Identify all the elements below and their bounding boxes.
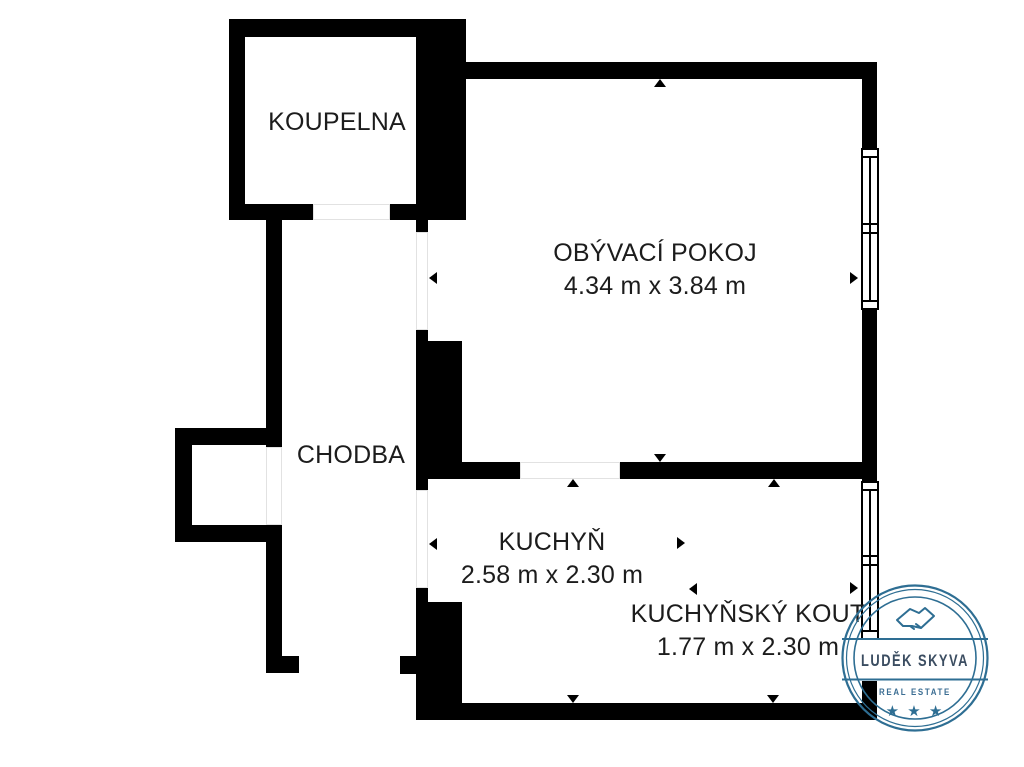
watermark-logo-svg: LUDĚK SKYVA REAL ESTATE ★ ★ ★ xyxy=(840,583,990,733)
window-rail xyxy=(863,156,877,158)
wall-livingroom-top xyxy=(466,62,877,79)
wall-livingroom-left-column xyxy=(416,341,462,479)
wall-entry-niche-bottom xyxy=(175,525,270,542)
wall-kitchen-notch xyxy=(400,656,416,674)
wall-bathroom-left xyxy=(229,19,245,220)
door-opening-entry xyxy=(266,447,282,525)
door-opening-hallway-kitchen xyxy=(416,490,428,588)
window-rail xyxy=(863,555,877,557)
star-icons: ★ ★ ★ xyxy=(886,703,945,720)
watermark-name: LUDĚK SKYVA xyxy=(861,651,969,670)
dimension-arrow-down-kitchen xyxy=(567,695,579,703)
dimension-arrow-right-kitchen xyxy=(677,537,685,549)
room-name: KUCHYŇSKÝ KOUT xyxy=(631,598,866,631)
wall-bathroom-bottom-right xyxy=(390,204,416,220)
dimension-arrow-up-kitchen xyxy=(567,479,579,487)
room-dimensions: 4.34 m x 3.84 m xyxy=(553,270,757,303)
wall-divider-left xyxy=(416,462,520,479)
room-label-chodba: CHODBA xyxy=(297,439,405,472)
wall-bathroom-bottom-left xyxy=(229,204,313,220)
dimension-arrow-left-kitchen xyxy=(429,538,437,550)
dimension-arrow-up-livingroom xyxy=(654,79,666,87)
window-rail xyxy=(863,489,877,491)
wall-hallway-foot xyxy=(266,656,299,673)
wall-kitchen-left-top xyxy=(416,479,428,490)
wall-right-1 xyxy=(862,62,877,150)
watermark-logo: LUDĚK SKYVA REAL ESTATE ★ ★ ★ xyxy=(840,583,990,733)
wall-kitchen-left-column xyxy=(416,602,462,720)
wall-livingroom-left-mid xyxy=(416,330,428,341)
room-dimensions: 2.58 m x 2.30 m xyxy=(461,559,643,592)
door-opening-livingroom xyxy=(416,232,428,330)
room-dimensions: 1.77 m x 2.30 m xyxy=(631,631,866,664)
wall-hallway-left-upper xyxy=(266,220,282,447)
window-rail xyxy=(863,300,877,302)
room-name: CHODBA xyxy=(297,439,405,472)
window-rail xyxy=(863,564,877,566)
dimension-arrow-right-livingroom xyxy=(850,272,858,284)
room-name: OBÝVACÍ POKOJ xyxy=(553,237,757,270)
handshake-icon xyxy=(897,608,934,629)
dimension-arrow-up-kitchenette xyxy=(768,479,780,487)
dimension-arrow-down-kitchenette xyxy=(767,695,779,703)
door-opening-bathroom xyxy=(313,204,390,220)
window-livingroom xyxy=(861,148,879,310)
watermark-subtitle: REAL ESTATE xyxy=(879,687,951,698)
wall-livingroom-left-top xyxy=(416,220,428,232)
dimension-arrow-down-livingroom xyxy=(654,454,666,462)
wall-bottom xyxy=(462,703,877,720)
wall-bathroom-right-column xyxy=(416,19,466,220)
dimension-arrow-left-livingroom xyxy=(429,272,437,284)
window-rail xyxy=(863,232,877,234)
wall-right-2 xyxy=(862,308,877,483)
room-label-obyvaci-pokoj: OBÝVACÍ POKOJ 4.34 m x 3.84 m xyxy=(553,237,757,303)
room-label-kuchynsky-kout: KUCHYŇSKÝ KOUT 1.77 m x 2.30 m xyxy=(631,598,866,664)
dimension-arrow-left-kitchenette xyxy=(689,583,697,595)
door-opening-kitchen-livingroom xyxy=(520,462,620,479)
floor-plan: KOUPELNA CHODBA OBÝVACÍ POKOJ 4.34 m x 3… xyxy=(0,0,1024,767)
wall-hallway-left-lower xyxy=(266,525,282,656)
window-mullion xyxy=(869,156,871,302)
wall-divider-right xyxy=(620,462,862,479)
room-name: KUCHYŇ xyxy=(461,526,643,559)
room-name: KOUPELNA xyxy=(268,106,406,139)
window-rail xyxy=(863,223,877,225)
room-label-koupelna: KOUPELNA xyxy=(268,106,406,139)
room-label-kuchyn: KUCHYŇ 2.58 m x 2.30 m xyxy=(461,526,643,592)
